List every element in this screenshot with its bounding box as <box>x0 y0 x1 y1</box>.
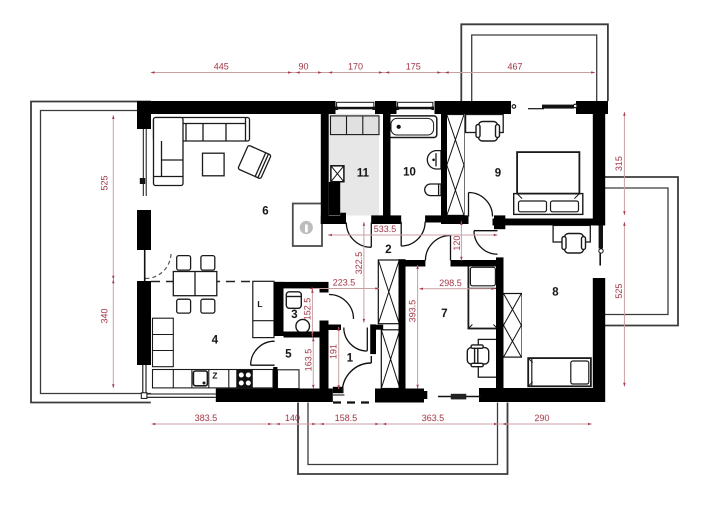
svg-text:9: 9 <box>495 168 501 180</box>
svg-text:223.5: 223.5 <box>333 278 356 288</box>
svg-text:Z: Z <box>212 371 217 381</box>
svg-text:11: 11 <box>357 168 370 180</box>
svg-text:6: 6 <box>262 205 268 217</box>
svg-text:1: 1 <box>347 353 354 365</box>
svg-text:298.5: 298.5 <box>439 278 462 288</box>
svg-text:383.5: 383.5 <box>195 413 218 423</box>
svg-text:152.5: 152.5 <box>302 298 312 321</box>
svg-text:363.5: 363.5 <box>422 413 445 423</box>
svg-text:340: 340 <box>99 309 109 324</box>
svg-text:5: 5 <box>285 349 292 361</box>
svg-text:525: 525 <box>614 284 624 299</box>
svg-text:90: 90 <box>298 61 308 71</box>
svg-text:175: 175 <box>406 61 421 71</box>
svg-text:533.5: 533.5 <box>374 224 397 234</box>
svg-text:191: 191 <box>328 344 338 359</box>
svg-text:163.5: 163.5 <box>303 349 313 372</box>
svg-text:525: 525 <box>99 176 109 191</box>
svg-text:7: 7 <box>441 308 447 320</box>
svg-text:10: 10 <box>403 167 416 179</box>
svg-text:170: 170 <box>348 61 363 71</box>
svg-text:L: L <box>257 299 262 309</box>
svg-text:4: 4 <box>212 335 219 347</box>
svg-text:290: 290 <box>534 413 549 423</box>
svg-text:120: 120 <box>452 236 462 251</box>
svg-text:2: 2 <box>385 244 391 256</box>
svg-text:158.5: 158.5 <box>335 413 358 423</box>
svg-text:322.5: 322.5 <box>354 252 364 275</box>
svg-text:393.5: 393.5 <box>407 300 417 323</box>
svg-text:315: 315 <box>614 156 624 171</box>
svg-text:3: 3 <box>291 309 297 321</box>
svg-text:445: 445 <box>214 61 229 71</box>
svg-text:8: 8 <box>552 287 559 299</box>
svg-text:467: 467 <box>507 62 522 72</box>
svg-text:140: 140 <box>285 413 300 423</box>
